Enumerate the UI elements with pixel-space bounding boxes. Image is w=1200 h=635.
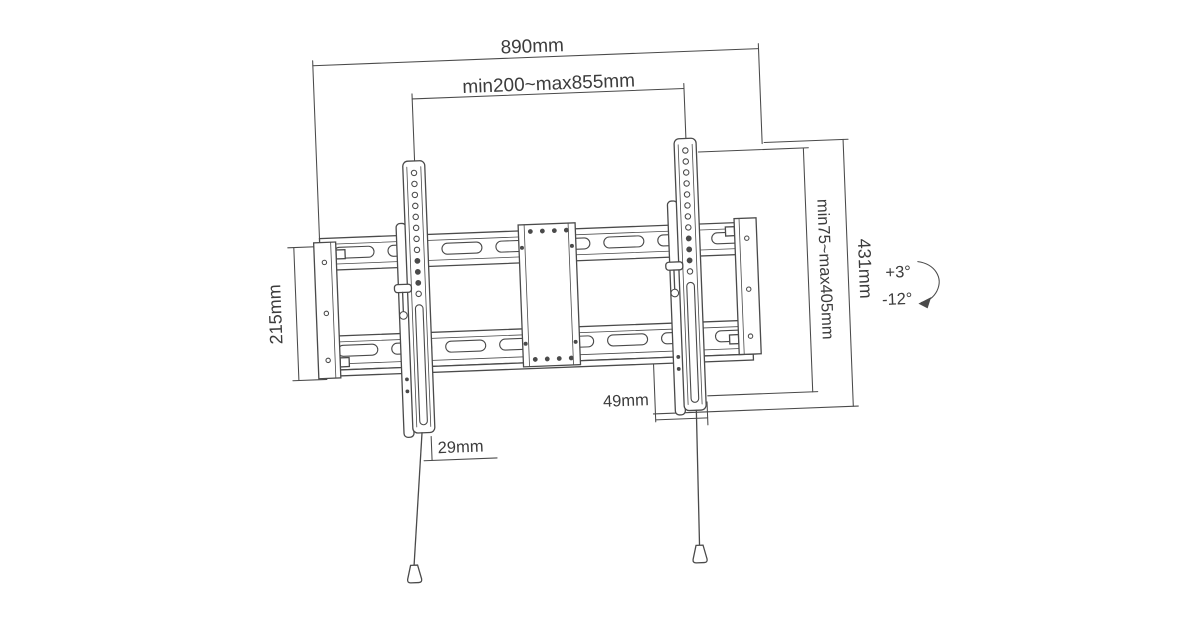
offset-arm-label: 29mm bbox=[437, 437, 484, 457]
cord-pull-left bbox=[407, 565, 422, 583]
rail-slot bbox=[442, 242, 482, 255]
tilt-arc bbox=[918, 261, 940, 303]
rail-slot bbox=[604, 236, 644, 249]
tilt-down-label: -12° bbox=[882, 290, 913, 309]
offset-bottom-label: 49mm bbox=[603, 391, 650, 411]
pull-cord-left bbox=[402, 433, 428, 583]
dim-mount-width-range bbox=[412, 84, 687, 167]
diagram-page: 890mm min200~max855mm 215mm min75~max405… bbox=[0, 0, 1200, 630]
vesa-arm-right bbox=[661, 138, 707, 415]
total-width-label: 890mm bbox=[500, 35, 564, 58]
cord-pull-right bbox=[692, 545, 707, 563]
rail-slot bbox=[446, 340, 486, 353]
mount-height-range-label: min75~max405mm bbox=[813, 199, 836, 340]
pull-cord-right bbox=[687, 410, 707, 563]
mount-width-range-label: min200~max855mm bbox=[462, 70, 635, 98]
tilt-up-label: +3° bbox=[885, 263, 911, 282]
tilt-indicator bbox=[917, 261, 940, 309]
vesa-arm-left bbox=[390, 161, 436, 438]
center-plate bbox=[518, 223, 580, 367]
plate-height-label: 215mm bbox=[264, 284, 286, 345]
wall-mount-dimension-drawing: 890mm min200~max855mm 215mm min75~max405… bbox=[0, 0, 1200, 630]
rail-slot bbox=[607, 334, 647, 347]
total-height-label: 431mm bbox=[854, 238, 876, 299]
tilt-arrowhead bbox=[918, 297, 931, 308]
rail-slot bbox=[338, 344, 378, 357]
